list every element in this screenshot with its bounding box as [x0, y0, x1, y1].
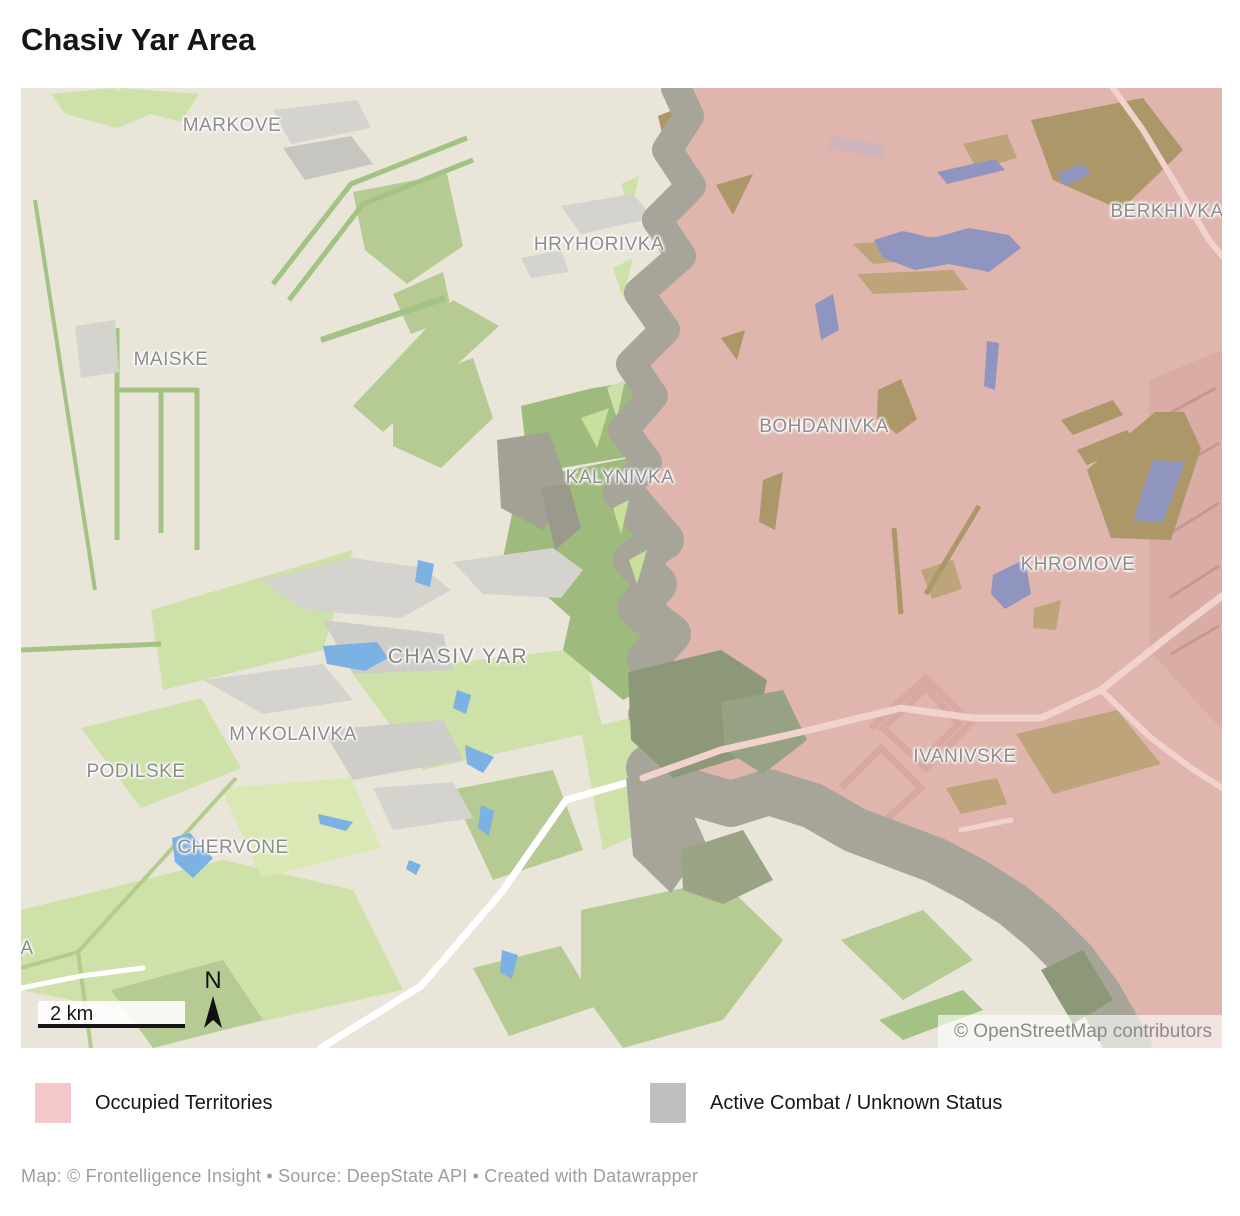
map-label-markove: MARKOVE [183, 115, 282, 137]
legend-item-occupied: Occupied Territories [35, 1083, 435, 1123]
north-indicator: N [193, 968, 233, 1030]
legend: Occupied Territories Active Combat / Unk… [0, 1083, 1240, 1123]
map-label-kalynivka: KALYNIVKA [566, 467, 675, 489]
map-label-podilske: PODILSKE [86, 761, 185, 783]
legend-swatch-combat [650, 1083, 686, 1123]
legend-label-combat: Active Combat / Unknown Status [710, 1083, 1002, 1123]
map-label-mykolaivka: MYKOLAIVKA [229, 724, 357, 746]
map-label-chasiv-yar: CHASIV YAR [388, 645, 528, 669]
north-arrow-icon [203, 996, 223, 1030]
page: Chasiv Yar Area [0, 0, 1240, 1216]
map-label-hryhorivka: HRYHORIVKA [534, 234, 664, 256]
map-canvas: MARKOVE HRYHORIVKA MAISKE BERKHIVKA BOHD… [21, 88, 1222, 1048]
map-label-ivanivske: IVANIVSKE [913, 746, 1016, 768]
scale-label: 2 km [38, 1001, 185, 1027]
map-label-khromove: KHROMOVE [1021, 554, 1136, 576]
map-label-chervone: CHERVONE [177, 837, 288, 859]
legend-swatch-occupied [35, 1083, 71, 1123]
legend-label-occupied: Occupied Territories [95, 1083, 272, 1123]
map-label-berkhivka: BERKHIVKA [1110, 201, 1222, 223]
map-label-maiske: MAISKE [134, 349, 209, 371]
legend-item-combat: Active Combat / Unknown Status [650, 1083, 1150, 1123]
map-label-clipped: A [21, 938, 34, 960]
footer-credit: Map: © Frontelligence Insight • Source: … [21, 1166, 698, 1187]
map-label-bohdanivka: BOHDANIVKA [759, 416, 889, 438]
scale-bar: 2 km [38, 1001, 185, 1028]
osm-attribution: © OpenStreetMap contributors [938, 1015, 1222, 1048]
north-label: N [193, 968, 233, 994]
page-title: Chasiv Yar Area [21, 22, 255, 58]
